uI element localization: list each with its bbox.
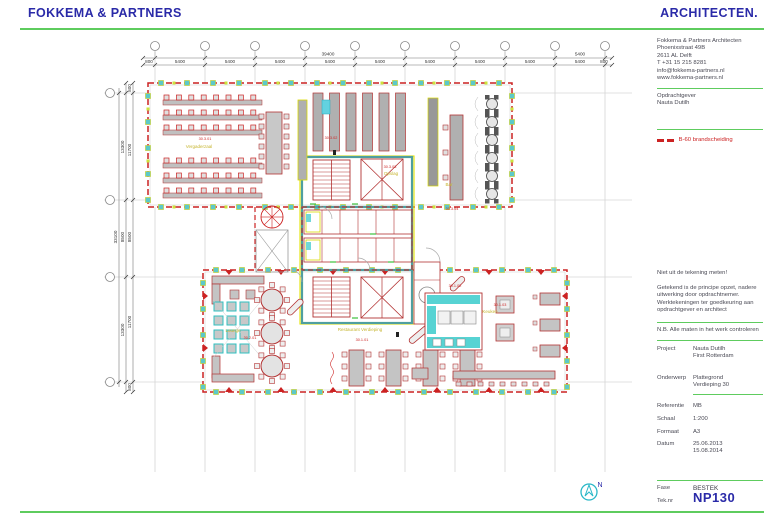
svg-text:30.3.01: 30.3.01: [199, 137, 212, 141]
svg-text:800: 800: [145, 59, 153, 64]
client-label: Opdrachtgever: [657, 93, 763, 100]
field-label: Formaat: [657, 429, 693, 436]
field-label: Fase: [657, 485, 693, 492]
svg-text:800: 800: [600, 59, 608, 64]
field-schaal: Schaal1:200: [657, 416, 769, 423]
datum-value-1: 25.06.2013: [693, 441, 722, 447]
svg-text:11700: 11700: [127, 143, 132, 156]
field-formaat: FormaatA3: [657, 429, 769, 436]
field-label: Project: [657, 346, 693, 353]
field-referentie: ReferentieMB: [657, 403, 769, 410]
address-line: 2611 AL Delft: [657, 53, 763, 60]
top-rule: [20, 28, 764, 30]
drawing-sheet: 3940054008005400540054005400540054005400…: [0, 0, 780, 520]
project-value-2: First Rotterdam: [693, 353, 734, 359]
svg-text:5400: 5400: [575, 52, 586, 57]
svg-text:30.2.01: 30.2.01: [244, 336, 257, 340]
field-teknr: Tek.nrNP130: [657, 494, 769, 505]
svg-text:Restaurant Verdieping: Restaurant Verdieping: [338, 327, 383, 332]
svg-text:800: 800: [127, 383, 132, 391]
svg-text:11700: 11700: [127, 315, 132, 328]
onderwerp-value-2: Verdieping 30: [693, 382, 729, 388]
fire-line-dash-icon: [657, 139, 664, 142]
svg-text:30.1.02: 30.1.02: [449, 284, 462, 288]
svg-text:30.3.04: 30.3.04: [446, 207, 459, 211]
field-onderwerp: OnderwerpPlattegrondVerdieping 30: [657, 375, 769, 390]
svg-text:5400: 5400: [525, 59, 536, 64]
svg-text:Keuken: Keuken: [482, 309, 498, 314]
brand-name-right: ARCHITECTEN.: [660, 6, 758, 20]
svg-text:33100: 33100: [113, 230, 118, 243]
referentie-value: MB: [693, 403, 702, 410]
bottom-rule: [20, 511, 764, 513]
client-name: Nauta Dutilh: [657, 100, 763, 107]
svg-text:5400: 5400: [375, 59, 386, 64]
svg-text:5400: 5400: [175, 59, 186, 64]
fire-line-dash-icon: [667, 139, 674, 142]
note-disclaimer: Getekend is de principe opzet, nadere ui…: [657, 285, 763, 315]
divider: [657, 340, 763, 341]
onderwerp-value-1: Plattegrond: [693, 375, 723, 381]
svg-text:30.3.03: 30.3.03: [384, 165, 397, 169]
schaal-value: 1:200: [693, 416, 708, 423]
divider: [657, 322, 763, 323]
svg-text:Bar: Bar: [445, 182, 453, 187]
svg-text:5400: 5400: [225, 59, 236, 64]
legend: B-60 brandscheiding: [657, 137, 763, 146]
svg-text:30.1.03: 30.1.03: [494, 303, 507, 307]
project-value-1: Nauta Dutilh: [693, 346, 725, 352]
brand-name-left: FOKKEMA & PARTNERS: [28, 6, 182, 20]
drawing-number: NP130: [693, 494, 735, 501]
svg-text:Lounge: Lounge: [225, 328, 241, 333]
svg-text:30.1.01: 30.1.01: [356, 338, 369, 342]
client-block: Opdrachtgever Nauta Dutilh: [657, 93, 763, 108]
divider: [657, 480, 763, 481]
field-datum: Datum25.06.201315.08.2014: [657, 441, 769, 456]
legend-label: B-60 brandscheiding: [679, 137, 733, 143]
svg-text:5400: 5400: [475, 59, 486, 64]
address-line: info@fokkema-partners.nl: [657, 68, 763, 75]
svg-text:5400: 5400: [575, 59, 586, 64]
field-label: Schaal: [657, 416, 693, 423]
firm-address-block: Fokkema & Partners Architecten Phoenixst…: [657, 38, 763, 82]
svg-text:30.3.02: 30.3.02: [325, 136, 338, 140]
svg-text:8500: 8500: [120, 231, 125, 242]
address-line: Phoenixstraat 49B: [657, 45, 763, 52]
address-line: Fokkema & Partners Architecten: [657, 38, 763, 45]
svg-text:8500: 8500: [127, 231, 132, 242]
svg-text:Opslag: Opslag: [384, 171, 399, 176]
datum-value-2: 15.08.2014: [693, 448, 722, 454]
divider: [693, 394, 763, 395]
address-line: www.fokkema-partners.nl: [657, 75, 763, 82]
divider: [657, 129, 763, 130]
field-label: Onderwerp: [657, 375, 693, 382]
address-line: T +31 15 215 8281: [657, 60, 763, 67]
divider: [657, 88, 763, 89]
svg-text:5400: 5400: [275, 59, 286, 64]
note-no-measuring: Niet uit de tekening meten!: [657, 270, 763, 277]
field-label: Datum: [657, 441, 693, 448]
field-project: ProjectNauta DutilhFirst Rotterdam: [657, 346, 769, 361]
svg-text:5400: 5400: [425, 59, 436, 64]
formaat-value: A3: [693, 429, 700, 436]
svg-text:39400: 39400: [322, 52, 335, 57]
field-label: Referentie: [657, 403, 693, 410]
svg-text:Vergaderzaal: Vergaderzaal: [186, 144, 213, 149]
svg-text:13300: 13300: [120, 140, 125, 153]
svg-text:13300: 13300: [120, 323, 125, 336]
field-label: Tek.nr: [657, 494, 693, 505]
svg-text:800: 800: [127, 84, 132, 92]
svg-text:N: N: [597, 482, 602, 489]
note-check-dimensions: N.B. Alle maten in het werk controleren: [657, 327, 763, 334]
svg-text:5400: 5400: [325, 59, 336, 64]
